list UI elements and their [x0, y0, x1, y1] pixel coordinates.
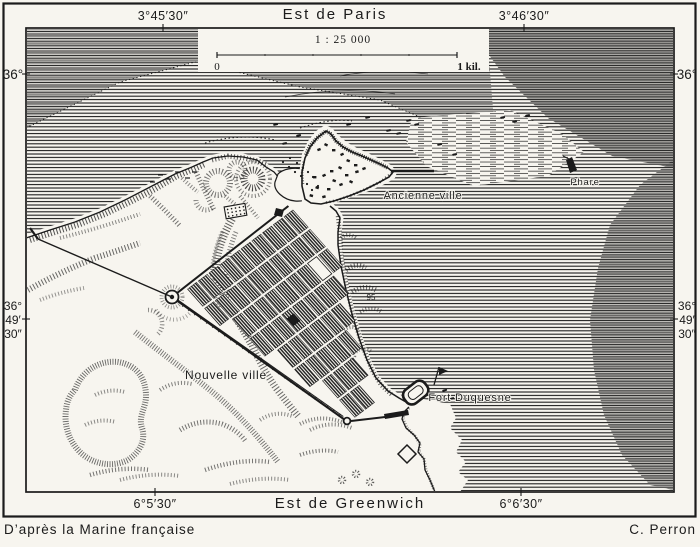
svg-text:3°45′30″: 3°45′30″: [138, 9, 189, 23]
svg-text:49′: 49′: [679, 313, 695, 327]
svg-text:6°5′30″: 6°5′30″: [133, 497, 176, 511]
svg-text:36°: 36°: [4, 299, 22, 313]
svg-text:30″: 30″: [678, 327, 696, 341]
svg-text:95: 95: [367, 293, 376, 302]
svg-text:D’après la Marine française: D’après la Marine française: [4, 522, 195, 537]
svg-text:1 : 25 000: 1 : 25 000: [315, 34, 371, 46]
svg-text:Fort Duquesne: Fort Duquesne: [428, 392, 511, 404]
svg-text:1 kil.: 1 kil.: [457, 61, 480, 73]
svg-text:Ancienne ville: Ancienne ville: [383, 190, 462, 202]
svg-text:36°: 36°: [678, 299, 696, 313]
svg-text:0: 0: [214, 61, 220, 73]
svg-text:49′: 49′: [5, 313, 21, 327]
svg-text:3°46′30″: 3°46′30″: [499, 9, 550, 23]
svg-text:30″: 30″: [4, 327, 22, 341]
svg-text:C. Perron: C. Perron: [629, 522, 696, 537]
svg-text:36°: 36°: [677, 67, 697, 82]
svg-text:Nouvelle ville: Nouvelle ville: [185, 368, 267, 382]
svg-text:6°6′30″: 6°6′30″: [499, 497, 542, 511]
svg-text:Est de Greenwich: Est de Greenwich: [275, 495, 425, 512]
svg-text:Est de Paris: Est de Paris: [283, 6, 388, 23]
svg-text:Phare: Phare: [570, 177, 599, 188]
svg-text:36°: 36°: [3, 67, 23, 82]
